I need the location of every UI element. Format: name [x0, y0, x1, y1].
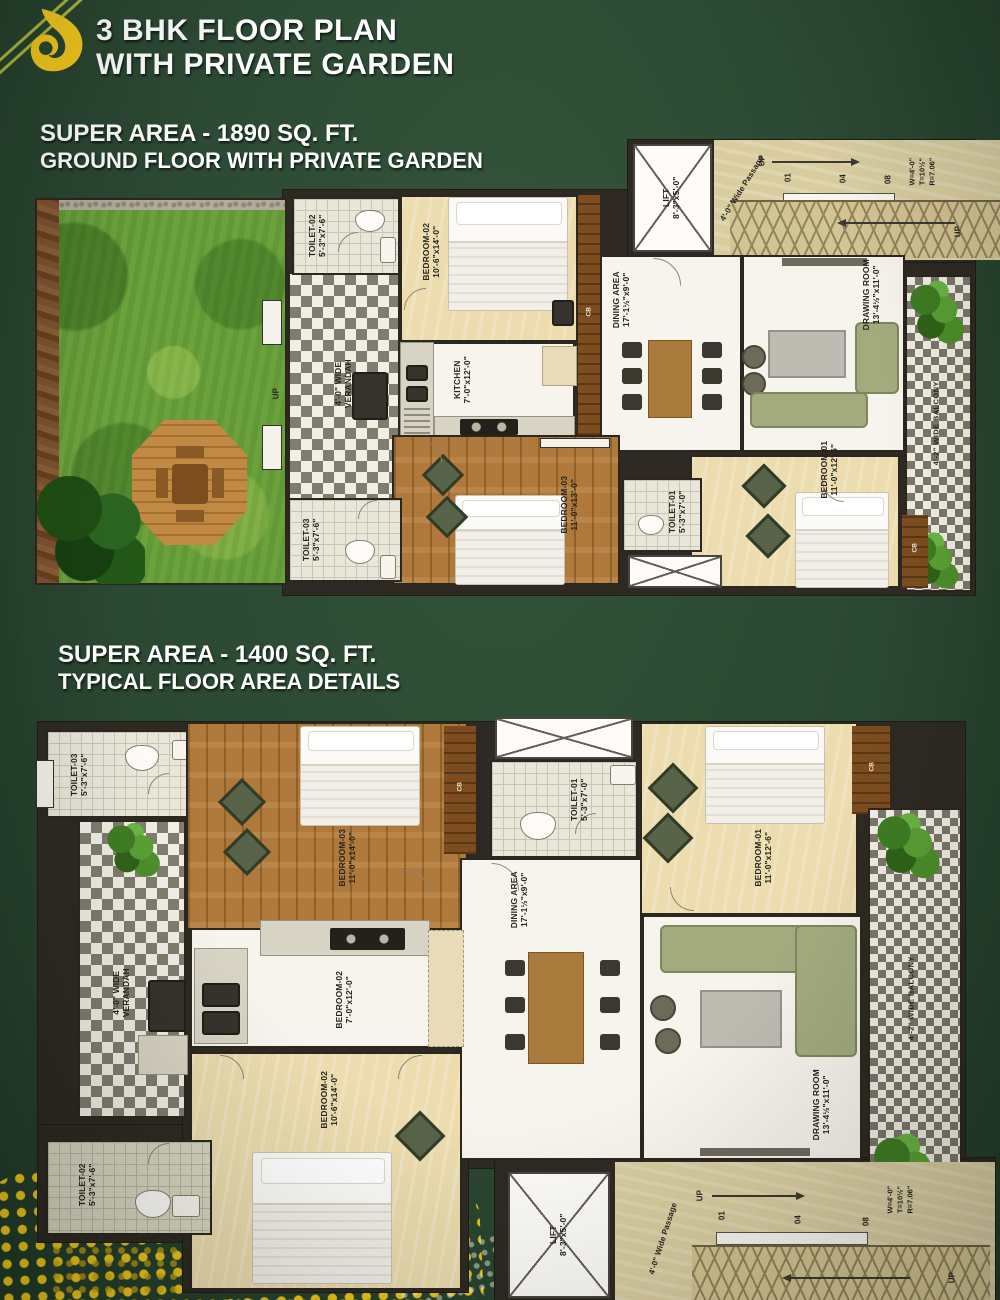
- up-label: UP: [953, 222, 962, 242]
- room-label-bedroom-01: BEDROOM-01 11'-0"x12'-6": [820, 432, 840, 508]
- page-title: 3 BHK FLOOR PLAN WITH PRIVATE GARDEN: [96, 14, 454, 81]
- dining-chair: [702, 342, 722, 358]
- room-dims: 11'-0"x13'-0": [570, 479, 580, 531]
- room-dims: 8'-3"x5'-0": [559, 1214, 569, 1257]
- label-text: UP: [271, 388, 280, 399]
- room-dims: 5'-3"x7'-6": [80, 754, 90, 797]
- label-text: 08: [883, 175, 892, 184]
- room-dims: 17'-1½"x9'-0": [520, 873, 530, 928]
- verandah-plants: [105, 823, 163, 877]
- garden-deck: [132, 420, 247, 545]
- dining-chair: [702, 394, 722, 410]
- balcony-label: 4'-2" WIDE BALCONY: [908, 943, 917, 1053]
- stair-landing-bar: [716, 1232, 868, 1245]
- room-label-dining-area: DINING AREA 17'-1½"x9'-0": [612, 260, 632, 340]
- stair-specs: W=4'-0" T=10½" R=7.06": [885, 1174, 914, 1226]
- stove-burners: [460, 419, 518, 435]
- brochure-page: 3 BHK FLOOR PLAN WITH PRIVATE GARDEN SUP…: [0, 0, 1000, 1300]
- plan1-heading-line1: SUPER AREA - 1890 SQ. FT.: [40, 120, 483, 148]
- label-text: 4'-2" WIDE BALCONY: [908, 956, 917, 1040]
- stair-direction-arrow: [845, 222, 955, 224]
- service-shaft: [495, 717, 633, 759]
- room-dims: 8'-3"x5'-0": [672, 177, 682, 220]
- stair-specs: W=4'-0" T=10½" R=7.06": [907, 146, 936, 198]
- cupboard-label: CB: [868, 760, 875, 774]
- kitchen-platform: [428, 930, 464, 1047]
- dining-chair: [622, 368, 642, 384]
- pillow: [261, 1158, 384, 1183]
- balcony-label: 4'-2" WIDE BALCONY: [933, 368, 942, 478]
- room-label-bedroom-03: BEDROOM-03 11'-0"x14'-0": [338, 820, 358, 896]
- up-direction-arrow: [712, 1195, 797, 1197]
- stove-burners: [330, 928, 405, 950]
- wash-sink: [610, 765, 636, 785]
- room-label-bedroom-02: BEDROOM-02 10'-6"x14'-0": [320, 1062, 340, 1138]
- room-dims: 11'-0"x14'-0": [348, 832, 358, 884]
- room-dims: 11'-0"x12'-6": [764, 832, 774, 884]
- dining-table: [528, 952, 584, 1064]
- room-label-toilet-02: TOILET-02 5'-3"x7'-6": [78, 1155, 98, 1215]
- flame-logo-icon: [26, 6, 90, 74]
- room-dims: 5'-3"x7'-0": [678, 491, 688, 534]
- service-shaft: [628, 555, 722, 588]
- label-text: CB: [456, 782, 463, 791]
- label-text: UP: [695, 1190, 704, 1201]
- pouf: [742, 345, 766, 369]
- deck-bench: [176, 446, 204, 458]
- room-label-kitchen: KITCHEN 7'-0"x12'-0": [453, 348, 473, 412]
- kitchen-sink: [202, 983, 240, 1007]
- up-label: UP: [757, 151, 766, 171]
- wash-sink: [172, 1195, 200, 1217]
- dining-chair: [600, 960, 620, 976]
- blanket: [253, 1203, 391, 1283]
- wash-basin: [148, 980, 186, 1032]
- label-text: UP: [953, 226, 962, 237]
- room-dims: 7'-0"x12'-0": [345, 976, 355, 1023]
- label-text: 04: [838, 174, 847, 183]
- stair-direction-arrow: [790, 1277, 910, 1279]
- blanket: [796, 529, 888, 587]
- room-label-toilet-03: TOILET-03 5'-3"x7'-6": [302, 510, 322, 570]
- garden-bushes: [37, 476, 145, 584]
- room-label-toilet-01: TOILET-01 5'-3"x7'-0": [668, 482, 688, 542]
- room-label-bedroom-01: BEDROOM-01 11'-0"x12'-6": [754, 820, 774, 896]
- label-text: CB: [911, 543, 918, 552]
- side-table: [552, 300, 574, 326]
- deck-bench: [212, 468, 224, 498]
- page-title-line2: WITH PRIVATE GARDEN: [96, 48, 454, 82]
- floor-plan-ground: 4'-0" WIDE VERANDAH UP TOILET-02 5'-3"x7…: [30, 140, 975, 612]
- label-text: 4'-0" WIDE VERANDAH: [334, 352, 354, 416]
- plan2-heading-line1: SUPER AREA - 1400 SQ. FT.: [58, 640, 400, 669]
- room-label-bedroom-03: BEDROOM-03 11'-0"x13'-0": [560, 467, 580, 543]
- tv-console: [700, 1148, 810, 1156]
- pouf: [655, 1028, 681, 1054]
- label-text: W=4'-0": [885, 1186, 895, 1214]
- dining-chair: [505, 1034, 525, 1050]
- label-text: 01: [717, 1211, 726, 1220]
- double-bed: [300, 726, 420, 826]
- room-label-drawing-room: DRAWING ROOM 13'-4½"x11'-0": [812, 1062, 832, 1148]
- dining-chair: [622, 394, 642, 410]
- label-text: 04: [793, 1215, 802, 1224]
- room-label-drawing-room: DRAWING ROOM 13'-4½"x11'-0": [862, 252, 882, 338]
- wash-sink: [380, 237, 396, 263]
- room-dims: 7'-0"x12'-0": [463, 356, 473, 403]
- room-dims: 17'-1½"x9'-0": [622, 273, 632, 328]
- wall-niche: [262, 425, 282, 470]
- room-dims: 11'-0"x12'-6": [830, 444, 840, 496]
- dining-chair: [702, 368, 722, 384]
- cupboard-label: CB: [456, 780, 463, 794]
- stair-number: 08: [883, 172, 892, 188]
- kitchen-sink: [406, 365, 428, 381]
- dining-chair: [600, 1034, 620, 1050]
- pillow: [308, 731, 414, 751]
- stair-number: 01: [717, 1208, 726, 1224]
- kitchen-sink: [202, 1011, 240, 1035]
- label-text: 4'-2" WIDE BALCONY: [933, 381, 942, 465]
- dining-chair: [505, 997, 525, 1013]
- stair-number: 01: [783, 170, 792, 186]
- wash-sink: [380, 555, 396, 579]
- room-dims: 5'-3"x7'-6": [318, 215, 328, 258]
- verandah-label: 4'-0" WIDE VERANDAH: [334, 352, 354, 416]
- room-dims: 13'-4½"x11'-0": [822, 1075, 832, 1134]
- sofa: [660, 925, 805, 973]
- blanket: [456, 529, 564, 584]
- stair-number: 08: [861, 1214, 870, 1230]
- room-label-lift: LIFT 8'-3"x5'-0": [662, 166, 682, 230]
- sofa: [795, 925, 857, 1057]
- floor-plan-typical: TOILET-03 5'-3"x7'-6" 4'-0" WIDE VERANDA…: [30, 715, 995, 1300]
- room-dims: 5'-3"x7'-6": [88, 1164, 98, 1207]
- wall-shelf: [540, 438, 610, 448]
- verandah-label: 4'-0" WIDE VERANDAH: [112, 961, 132, 1025]
- room-dims: 10'-6"x14'-0": [432, 226, 442, 278]
- wall-niche: [262, 300, 282, 345]
- label-text: T=10½": [895, 1186, 905, 1213]
- coffee-table: [768, 330, 846, 378]
- room-label-toilet-01: TOILET-01 5'-3"x7'-0": [570, 770, 590, 830]
- pillow: [462, 500, 559, 518]
- plan2-heading-line2: TYPICAL FLOOR AREA DETAILS: [58, 669, 400, 696]
- room-label-kitchen-area: BEDROOM-02 7'-0"x12'-0": [335, 965, 355, 1035]
- plan2-heading: SUPER AREA - 1400 SQ. FT. TYPICAL FLOOR …: [58, 640, 400, 696]
- pouf: [650, 995, 676, 1021]
- room-label-dining-area: DINING AREA 17'-1½"x9'-0": [510, 860, 530, 940]
- cupboard-label: CB: [585, 305, 592, 319]
- refrigerator: [542, 346, 577, 386]
- stair-number: 04: [793, 1212, 802, 1228]
- balcony-plants: [875, 813, 943, 879]
- brand-logo: [26, 6, 90, 74]
- dining-chair: [505, 960, 525, 976]
- private-garden: [35, 198, 287, 585]
- label-text: UP: [757, 155, 766, 166]
- label-text: 08: [861, 1217, 870, 1226]
- pillow: [456, 202, 562, 224]
- cupboard-label: CB: [911, 541, 918, 555]
- label-text: CB: [868, 762, 875, 771]
- pebble-strip: [59, 200, 285, 210]
- utility-slab: [138, 1035, 188, 1075]
- double-bed: [795, 492, 889, 588]
- deck-bench: [176, 510, 204, 522]
- double-bed: [252, 1152, 392, 1284]
- up-label: UP: [947, 1268, 956, 1288]
- room-label-toilet-03: TOILET-03 5'-3"x7'-6": [70, 745, 90, 805]
- label-text: CB: [585, 307, 592, 316]
- room-dims: 5'-3"x7'-0": [580, 779, 590, 822]
- deck-table: [172, 464, 208, 504]
- label-text: W=4'-0": [907, 158, 917, 186]
- label-text: R=7.06": [905, 1186, 915, 1214]
- balcony-plants: [910, 280, 965, 346]
- blanket: [449, 241, 567, 310]
- up-label: UP: [695, 1186, 704, 1206]
- stair-number: 04: [838, 171, 847, 187]
- page-title-line1: 3 BHK FLOOR PLAN: [96, 14, 454, 48]
- plan1-heading-line2: GROUND FLOOR WITH PRIVATE GARDEN: [40, 148, 483, 174]
- dining-chair: [622, 342, 642, 358]
- room-dims: 10'-6"x14'-0": [330, 1074, 340, 1126]
- plan1-heading: SUPER AREA - 1890 SQ. FT. GROUND FLOOR W…: [40, 120, 483, 174]
- label-text: 4'-0" WIDE VERANDAH: [112, 961, 132, 1025]
- up-direction-arrow: [772, 161, 852, 163]
- drying-rack: [404, 406, 430, 434]
- room-dims: 13'-4½"x11'-0": [872, 265, 882, 324]
- blanket: [301, 764, 419, 825]
- stair-treads: [692, 1245, 990, 1300]
- label-text: 01: [783, 173, 792, 182]
- room-toilet-02: [46, 1140, 212, 1235]
- sofa: [750, 392, 868, 428]
- room-toilet-01: [622, 478, 702, 552]
- blanket: [706, 763, 824, 823]
- room-label-lift: LIFT 8'-3"x5'-0": [549, 1203, 569, 1267]
- wash-basin: [352, 372, 388, 420]
- wall-niche: [36, 760, 54, 808]
- label-text: T=10½": [917, 158, 927, 185]
- label-text: R=7.06": [927, 158, 937, 186]
- dining-table: [648, 340, 692, 418]
- room-label-bedroom-02: BEDROOM-02 10'-6"x14'-0": [422, 214, 442, 290]
- double-bed: [448, 197, 568, 311]
- room-dims: 5'-3"x7'-6": [312, 519, 322, 562]
- pillow: [713, 731, 819, 750]
- up-label: UP: [271, 384, 280, 404]
- tv-console: [782, 258, 867, 266]
- double-bed: [455, 495, 565, 585]
- coffee-table: [700, 990, 782, 1048]
- label-text: UP: [947, 1272, 956, 1283]
- deck-bench: [156, 468, 168, 498]
- kitchen-sink: [406, 386, 428, 402]
- dining-chair: [600, 997, 620, 1013]
- room-label-toilet-02: TOILET-02 5'-3"x7'-6": [308, 206, 328, 266]
- double-bed: [705, 726, 825, 824]
